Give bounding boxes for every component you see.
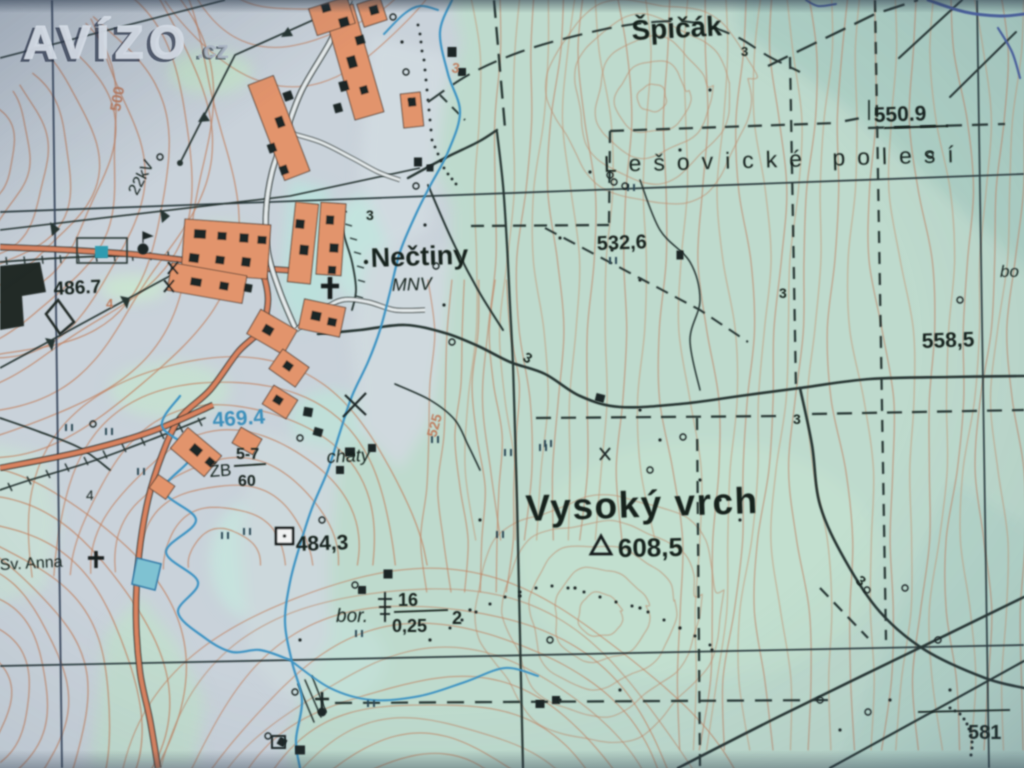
svg-text:AVÍZO: AVÍZO — [24, 16, 191, 68]
svg-text:.cz: .cz — [197, 37, 229, 64]
